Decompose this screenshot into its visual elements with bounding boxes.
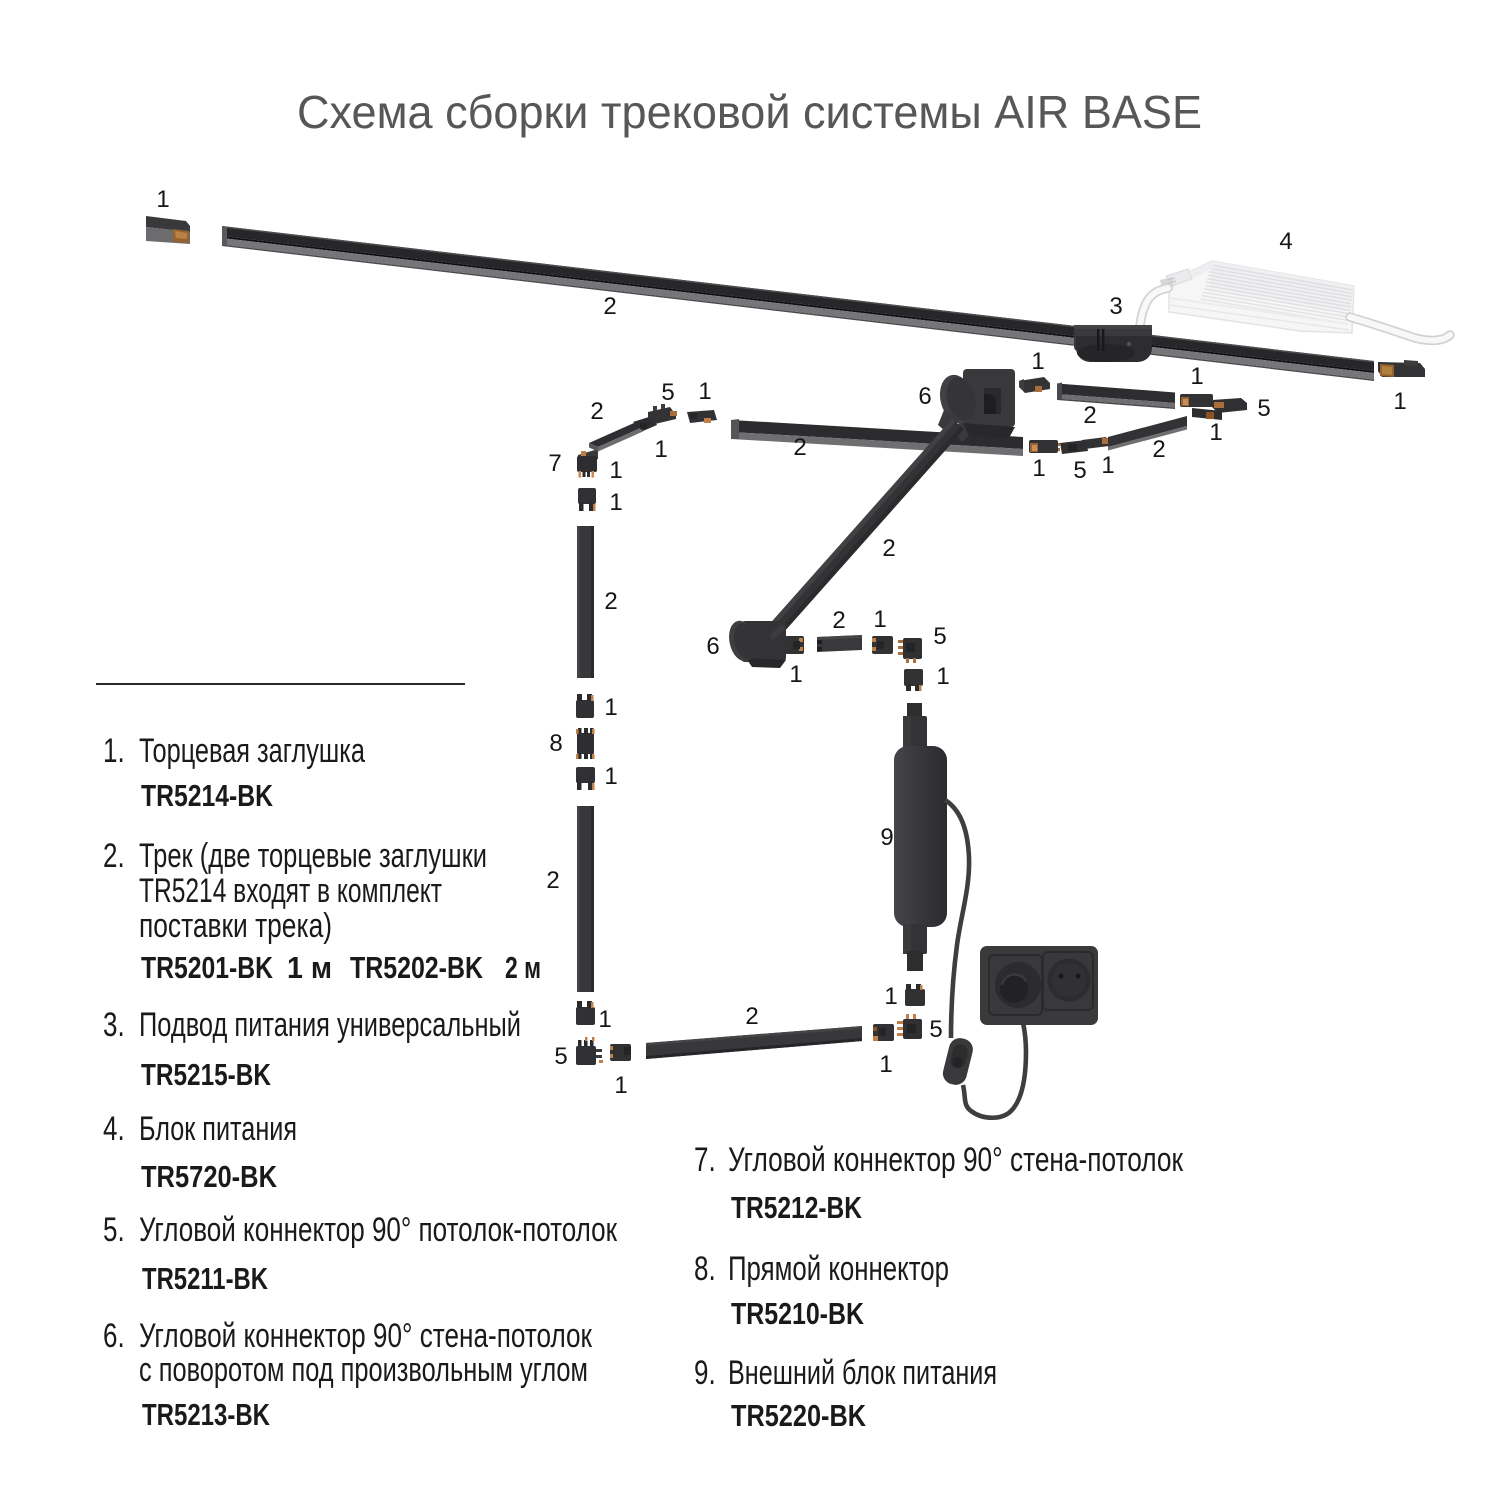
svg-text:Блок питания: Блок питания: [139, 1110, 297, 1148]
svg-text:9.: 9.: [694, 1354, 716, 1392]
svg-text:Прямой коннектор: Прямой коннектор: [728, 1250, 949, 1288]
svg-text:Угловой коннектор 90° потолок-: Угловой коннектор 90° потолок-потолок: [139, 1211, 618, 1249]
svg-text:1: 1: [1190, 363, 1203, 390]
svg-text:2: 2: [882, 535, 895, 562]
svg-text:5: 5: [933, 623, 946, 650]
svg-text:1: 1: [609, 457, 622, 484]
svg-text:1 м: 1 м: [287, 951, 332, 985]
svg-text:TR5720-BK: TR5720-BK: [141, 1160, 277, 1194]
svg-text:5: 5: [1257, 395, 1270, 422]
svg-text:с поворотом под произвольным у: с поворотом под произвольным углом: [139, 1351, 588, 1389]
svg-text:Подвод питания универсальный: Подвод питания универсальный: [139, 1006, 521, 1044]
svg-text:6: 6: [918, 383, 931, 410]
svg-text:1: 1: [879, 1051, 892, 1078]
svg-text:1: 1: [884, 983, 897, 1010]
svg-text:TR5213-BK: TR5213-BK: [142, 1398, 270, 1432]
svg-text:5: 5: [554, 1043, 567, 1070]
svg-text:1.: 1.: [103, 732, 125, 770]
svg-text:Торцевая заглушка: Торцевая заглушка: [139, 732, 365, 770]
svg-text:TR5211-BK: TR5211-BK: [142, 1262, 268, 1296]
svg-text:2: 2: [793, 434, 806, 461]
svg-text:9: 9: [880, 824, 893, 851]
svg-text:5: 5: [661, 379, 674, 406]
svg-text:1: 1: [1101, 452, 1114, 479]
svg-text:2: 2: [745, 1003, 758, 1030]
svg-text:2: 2: [603, 293, 616, 320]
svg-text:Угловой коннектор 90° стена-по: Угловой коннектор 90° стена-потолок: [139, 1317, 593, 1355]
svg-text:TR5215-BK: TR5215-BK: [141, 1058, 271, 1092]
svg-text:5: 5: [1073, 457, 1086, 484]
svg-text:Угловой коннектор 90° стена-по: Угловой коннектор 90° стена-потолок: [728, 1141, 1184, 1179]
svg-text:8: 8: [549, 730, 562, 757]
svg-text:TR5212-BK: TR5212-BK: [731, 1191, 862, 1225]
svg-text:2: 2: [1083, 402, 1096, 429]
svg-text:Внешний блок питания: Внешний блок питания: [728, 1354, 997, 1392]
svg-text:поставки трека): поставки трека): [139, 907, 332, 945]
svg-text:4: 4: [1279, 228, 1292, 255]
svg-text:5: 5: [929, 1016, 942, 1043]
svg-text:Схема сборки трековой системы: Схема сборки трековой системы AIR BASE: [297, 86, 1202, 138]
svg-text:1: 1: [614, 1072, 627, 1099]
svg-text:Трек (две торцевые заглушки: Трек (две торцевые заглушки: [139, 837, 487, 875]
svg-text:3.: 3.: [103, 1006, 125, 1044]
svg-text:4.: 4.: [103, 1110, 125, 1148]
svg-text:2: 2: [604, 588, 617, 615]
svg-text:1: 1: [873, 606, 886, 633]
svg-text:TR5210-BK: TR5210-BK: [731, 1297, 864, 1331]
svg-text:7.: 7.: [694, 1141, 716, 1179]
svg-text:TR5214-BK: TR5214-BK: [141, 779, 273, 813]
svg-text:7: 7: [548, 450, 561, 477]
svg-text:1: 1: [1209, 419, 1222, 446]
svg-text:2: 2: [546, 867, 559, 894]
svg-text:3: 3: [1109, 293, 1122, 320]
svg-text:TR5201-BK: TR5201-BK: [141, 951, 273, 985]
svg-text:1: 1: [609, 489, 622, 516]
svg-text:2: 2: [1152, 436, 1165, 463]
svg-text:TR5220-BK: TR5220-BK: [731, 1399, 866, 1433]
svg-text:1: 1: [604, 763, 617, 790]
svg-text:TR5202-BK: TR5202-BK: [350, 951, 483, 985]
svg-text:1: 1: [1393, 388, 1406, 415]
svg-text:1: 1: [936, 663, 949, 690]
svg-text:1: 1: [1032, 455, 1045, 482]
svg-text:1: 1: [604, 694, 617, 721]
svg-text:1: 1: [654, 436, 667, 463]
svg-text:5.: 5.: [103, 1211, 125, 1249]
svg-text:1: 1: [698, 378, 711, 405]
svg-text:1: 1: [789, 661, 802, 688]
svg-text:8.: 8.: [694, 1250, 716, 1288]
svg-text:2.: 2.: [103, 837, 125, 875]
svg-text:1: 1: [1031, 348, 1044, 375]
svg-text:1: 1: [598, 1006, 611, 1033]
svg-text:6: 6: [706, 633, 719, 660]
svg-text:1: 1: [156, 186, 169, 213]
svg-text:2 м: 2 м: [505, 951, 541, 985]
svg-text:2: 2: [590, 398, 603, 425]
svg-text:2: 2: [832, 607, 845, 634]
svg-text:TR5214 входят в комплект: TR5214 входят в комплект: [139, 872, 442, 910]
svg-text:6.: 6.: [103, 1317, 125, 1355]
